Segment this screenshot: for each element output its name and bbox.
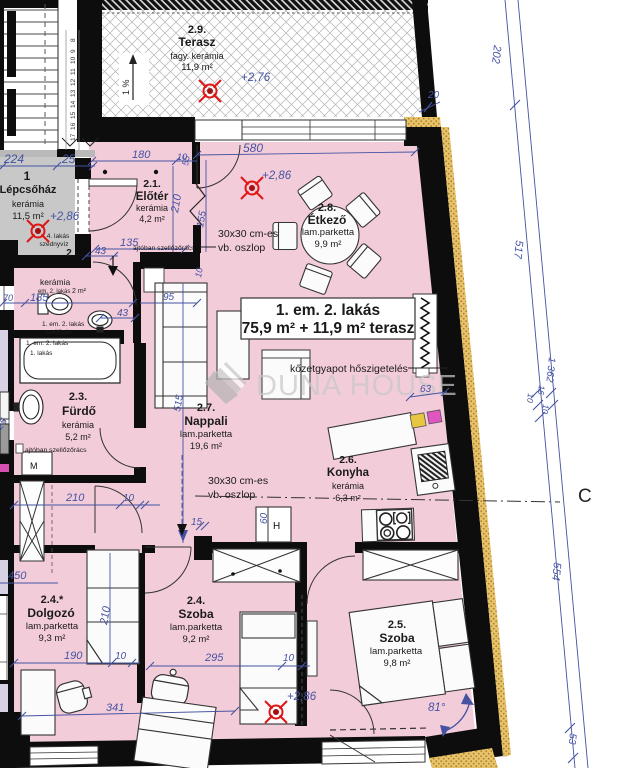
svg-text:517: 517 [511,240,525,260]
svg-text:+2,86: +2,86 [262,170,292,182]
svg-text:13: 13 [70,89,77,97]
svg-text:43: 43 [95,246,107,257]
svg-text:11,9 m²: 11,9 m² [181,62,213,73]
svg-text:Szoba: Szoba [379,631,415,645]
svg-text:Nappali: Nappali [184,414,227,428]
svg-text:10: 10 [540,404,551,415]
svg-text:ajtóban szellőzőrács: ajtóban szellőzőrács [25,447,87,454]
svg-text:Lépcsőház: Lépcsőház [0,184,57,196]
svg-text:10: 10 [123,493,135,504]
svg-text:1. em. 2. lakás: 1. em. 2. lakás [276,302,380,319]
svg-text:Fürdő: Fürdő [62,404,96,418]
svg-text:16: 16 [536,385,547,396]
svg-text:vb. oszlop: vb. oszlop [208,489,255,501]
svg-text:em. 2. lakás: em. 2. lakás [38,289,70,295]
svg-text:M: M [30,461,38,471]
svg-text:295: 295 [204,652,224,664]
svg-text:6,3 m²: 6,3 m² [335,493,361,503]
svg-text:lam.parketta: lam.parketta [180,429,233,440]
svg-text:lam.parketta: lam.parketta [26,621,79,632]
svg-text:2: 2 [66,248,72,259]
svg-text:Étkező: Étkező [308,212,347,227]
svg-text:1. lakás: 1. lakás [30,350,53,357]
svg-text:Dolgozó: Dolgozó [27,606,74,620]
svg-text:Szoba: Szoba [178,607,214,621]
svg-text:19,6 m²: 19,6 m² [190,441,222,452]
svg-text:580: 580 [243,141,263,155]
svg-text:szellőzés: szellőzés [45,329,72,336]
svg-text:10: 10 [525,393,536,404]
svg-text:lam.parketta: lam.parketta [170,622,223,633]
svg-text:1 %: 1 % [121,79,131,95]
svg-text:2 m²: 2 m² [72,288,87,295]
svg-text:vb. oszlop: vb. oszlop [218,242,265,254]
svg-text:16: 16 [70,122,77,130]
svg-text:2.3.: 2.3. [69,391,87,403]
svg-text:202: 202 [489,44,503,65]
svg-text:15: 15 [191,517,203,528]
svg-text:180: 180 [132,149,151,161]
svg-text:kerámia: kerámia [136,203,168,213]
svg-text:15: 15 [70,111,77,119]
svg-text:9,2 m²: 9,2 m² [183,634,210,645]
svg-text:10: 10 [283,653,295,664]
svg-text:9,3 m²: 9,3 m² [39,633,66,644]
svg-text:1. em. 2. lakás: 1. em. 2. lakás [26,340,69,347]
svg-text:H: H [273,521,280,532]
svg-text:10: 10 [115,651,127,662]
svg-text:9: 9 [70,49,77,53]
svg-text:4. lakás: 4. lakás [47,233,70,240]
svg-text:11: 11 [70,68,77,75]
svg-text:53: 53 [566,733,578,746]
svg-text:95: 95 [163,292,175,303]
svg-text:kőzetgyapot hőszigetelés: kőzetgyapot hőszigetelés [290,363,408,375]
svg-text:fagy. kerámia: fagy. kerámia [170,51,223,61]
svg-text:Konyha: Konyha [327,467,370,479]
svg-text:+2,86: +2,86 [50,211,80,223]
svg-text:75,9 m² + 11,9 m² terasz: 75,9 m² + 11,9 m² terasz [242,320,415,337]
svg-text:30x30 cm-es: 30x30 cm-es [218,228,278,240]
svg-text:2.7.: 2.7. [197,402,215,414]
svg-text:kerámia: kerámia [62,420,94,430]
svg-text:2.6.: 2.6. [339,454,357,466]
svg-text:lam.parketta: lam.parketta [302,227,355,238]
svg-text:8: 8 [70,38,77,42]
svg-text:9,9 m²: 9,9 m² [315,239,342,250]
svg-text:12: 12 [70,78,77,86]
svg-text:lam.parketta: lam.parketta [370,646,423,657]
svg-text:341: 341 [106,702,124,714]
svg-text:2.1.: 2.1. [143,178,161,190]
svg-text:224: 224 [3,152,24,166]
svg-text:63: 63 [420,384,432,395]
svg-text:5,2 m²: 5,2 m² [65,432,91,442]
svg-text:1. em. 2. lakás: 1. em. 2. lakás [42,321,85,328]
svg-text:60: 60 [259,512,270,524]
svg-text:20: 20 [427,90,440,101]
svg-text:70: 70 [3,293,13,303]
svg-text:43: 43 [117,308,129,319]
svg-text:190: 190 [64,650,83,662]
svg-text:81°: 81° [428,702,446,714]
svg-text:szednyvíz: szednyvíz [40,241,69,248]
svg-text:10: 10 [193,267,205,279]
svg-text:Előtér: Előtér [136,191,169,203]
svg-text:450: 450 [8,570,27,582]
svg-text:2.4.: 2.4. [187,595,205,607]
svg-text:14: 14 [70,100,77,108]
svg-text:ajtóban szellőzőrács: ajtóban szellőzőrács [133,245,195,252]
svg-text:kerámia: kerámia [332,481,364,491]
svg-text:10: 10 [70,56,77,64]
svg-text:554: 554 [549,562,563,582]
svg-text:4,2 m²: 4,2 m² [139,214,165,224]
svg-text:Terasz: Terasz [178,35,215,49]
svg-text:210: 210 [65,492,85,504]
svg-text:kerámia: kerámia [40,277,71,287]
svg-text:1: 1 [24,169,31,183]
svg-text:+2,76: +2,76 [241,72,271,84]
svg-text:2.4.*: 2.4.* [41,594,64,606]
svg-text:2.5.: 2.5. [388,619,406,631]
svg-text:11,5 m²: 11,5 m² [12,211,44,222]
svg-text:25: 25 [61,152,76,166]
svg-text:9,8 m²: 9,8 m² [384,658,411,669]
svg-text:C: C [578,486,592,507]
svg-text:30x30 cm-es: 30x30 cm-es [208,475,268,487]
svg-text:+2,86: +2,86 [287,691,317,703]
svg-text:kerámia: kerámia [12,199,44,209]
